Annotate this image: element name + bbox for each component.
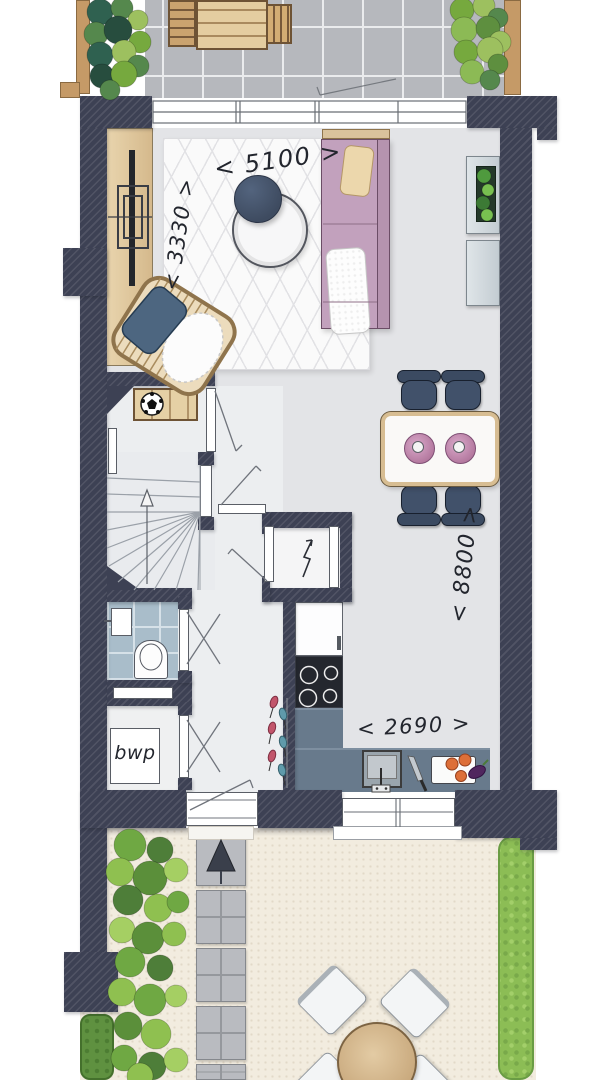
kitchen-window-frame [344, 799, 453, 827]
terrace-window-band [153, 101, 466, 123]
wall-diagonal-corners [107, 386, 140, 590]
door-swings [187, 391, 267, 818]
terrace-door-swing [317, 79, 396, 95]
soccer-ball-icon [141, 392, 163, 415]
sofa-seams [323, 224, 377, 302]
vegetables [446, 754, 488, 782]
planter-leaves [476, 169, 494, 221]
floor-plan: bwp [0, 0, 608, 1080]
terrace-plants-left [84, 0, 151, 100]
kitchen-utensils [267, 695, 288, 785]
cooktop-burners [300, 667, 338, 707]
toilet-details [104, 621, 162, 670]
stairs [107, 465, 200, 590]
terrace-plants-right [450, 0, 511, 90]
fridge-handle [337, 636, 341, 650]
tv-bracket-icon [108, 186, 152, 248]
north-arrow-icon [207, 840, 235, 884]
sink-faucet [372, 768, 390, 792]
lightning-bolt-icon [303, 540, 312, 577]
garden-bushes-left [106, 829, 189, 1080]
knife-icon [408, 756, 426, 791]
